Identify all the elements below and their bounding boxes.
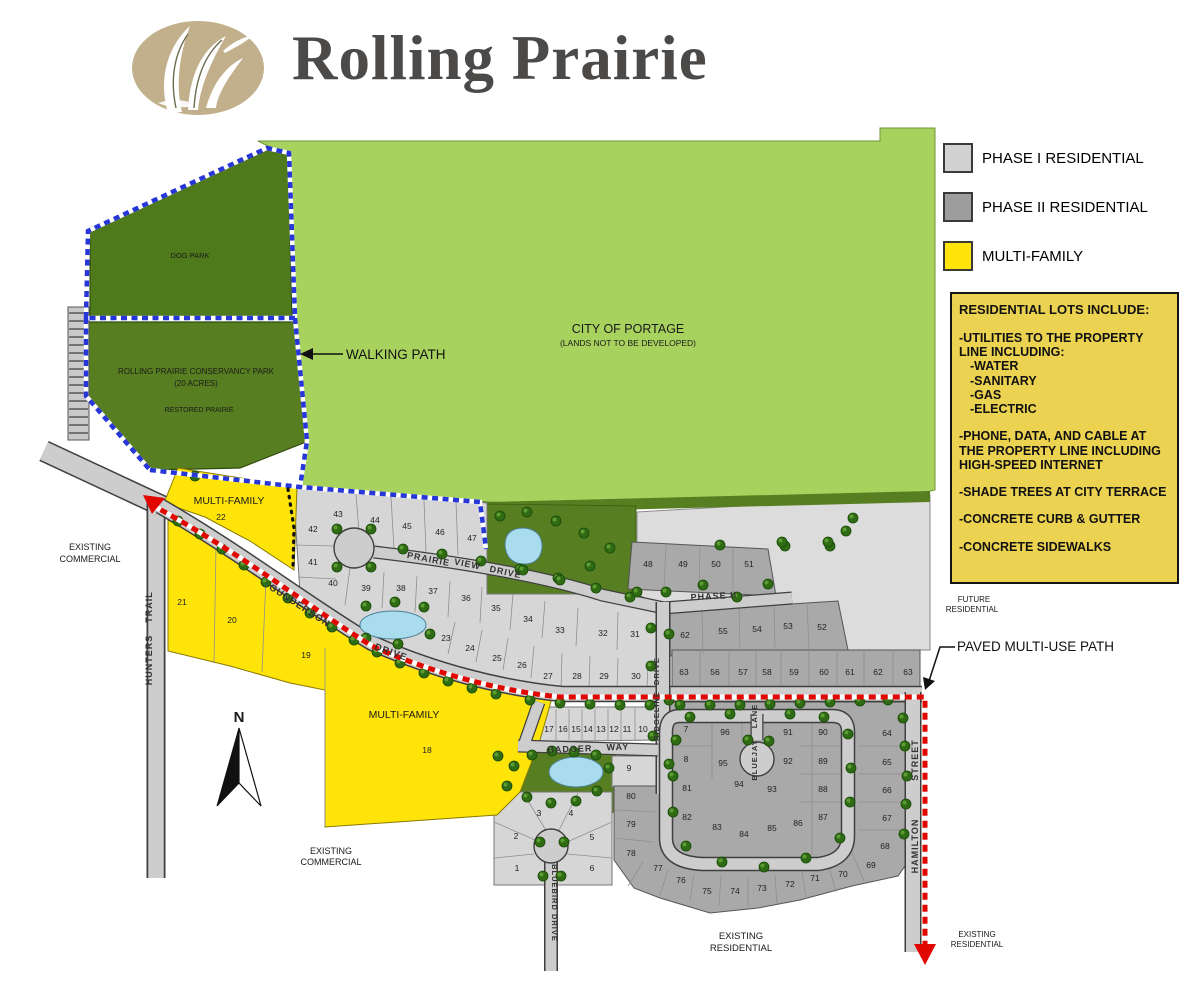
tree-icon-highlight (850, 515, 854, 519)
legend-swatch (943, 192, 973, 222)
lot-number: 59 (789, 667, 799, 677)
lot-number: 43 (333, 509, 343, 519)
tree-icon-highlight (527, 697, 531, 701)
lot-number: 14 (583, 724, 593, 734)
paved-path-leader (929, 647, 955, 681)
lot-number: 91 (783, 727, 793, 737)
lot-number: 36 (461, 593, 471, 603)
lot-number: 31 (630, 629, 640, 639)
street-label: LANE (750, 704, 759, 728)
tree-icon-highlight (717, 542, 721, 546)
tree-icon-highlight (557, 700, 561, 704)
tree-icon-highlight (561, 839, 565, 843)
tree-icon (538, 871, 548, 881)
prairie-view-cul-de-sac (334, 528, 374, 568)
tree-icon (390, 597, 400, 607)
lot-number: 23 (441, 633, 451, 643)
tree-icon (841, 526, 851, 536)
tree-icon-highlight (670, 809, 674, 813)
info-box-line: -SANITARY (959, 374, 1171, 388)
site-plan-page: 1234567891011121314151617181920212223242… (0, 0, 1200, 1001)
area-label: EXISTING (310, 846, 352, 856)
lot-number: 75 (702, 886, 712, 896)
lot-number: 22 (216, 512, 226, 522)
tree-icon-highlight (573, 798, 577, 802)
north-arrow (217, 728, 261, 806)
tree-icon (819, 712, 829, 722)
lot-number: 82 (682, 812, 692, 822)
tree-icon-highlight (395, 641, 399, 645)
tree-icon (715, 540, 725, 550)
lot-number: 58 (762, 667, 772, 677)
lot-number: 3 (537, 808, 542, 818)
tree-icon (785, 709, 795, 719)
area-label: (LANDS NOT TO BE DEVELOPED) (560, 338, 696, 348)
area-label: CITY OF PORTAGE (572, 322, 685, 336)
tree-icon-highlight (529, 752, 533, 756)
tree-icon-highlight (648, 663, 652, 667)
area-label: (20 ACRES) (174, 379, 218, 388)
lot-number: 37 (428, 586, 438, 596)
lot-number: 65 (882, 757, 892, 767)
tree-icon (615, 700, 625, 710)
tree-icon-highlight (593, 752, 597, 756)
tree-icon (361, 601, 371, 611)
tree-icon-highlight (767, 701, 771, 705)
area-label: RESIDENTIAL (951, 940, 1004, 949)
tree-icon (467, 683, 477, 693)
info-box-line: -PHONE, DATA, AND CABLE AT THE PROPERTY … (959, 429, 1171, 472)
tree-icon (901, 799, 911, 809)
tree-icon-highlight (557, 577, 561, 581)
tree-icon (763, 579, 773, 589)
tree-icon-highlight (797, 700, 801, 704)
lot-number: 1 (515, 863, 520, 873)
street-label: RIDGELINE (652, 691, 661, 741)
lot-number: 48 (643, 559, 653, 569)
tree-icon (668, 807, 678, 817)
tree-icon (725, 709, 735, 719)
tree-icon-highlight (663, 589, 667, 593)
tree-icon (571, 796, 581, 806)
lot-number: 21 (177, 597, 187, 607)
street-label: HAMILTON (910, 819, 920, 874)
lot-number: 96 (720, 727, 730, 737)
tree-icon-highlight (904, 773, 908, 777)
tree-icon-highlight (627, 594, 631, 598)
lot-number: 41 (308, 557, 318, 567)
conservancy-park-area (88, 322, 306, 470)
tree-icon-highlight (497, 513, 501, 517)
tree-icon-highlight (902, 743, 906, 747)
tree-icon-highlight (843, 528, 847, 532)
tree-icon (425, 629, 435, 639)
tree-icon (509, 761, 519, 771)
lot-number: 2 (514, 831, 519, 841)
tree-icon-highlight (683, 843, 687, 847)
lot-number: 73 (757, 883, 767, 893)
legend-swatch (943, 143, 973, 173)
callout-label: WALKING PATH (346, 347, 446, 362)
tree-icon-highlight (421, 604, 425, 608)
tree-icon-highlight (581, 530, 585, 534)
lot-number: 62 (873, 667, 883, 677)
lot-number: 67 (882, 813, 892, 823)
lot-number: 38 (396, 583, 406, 593)
pond-prairie-view (505, 528, 542, 564)
lot-number: 19 (301, 650, 311, 660)
tree-icon (848, 513, 858, 523)
lot-number: 30 (631, 671, 641, 681)
brand-title: Rolling Prairie (292, 22, 708, 95)
lot-number: 88 (818, 784, 828, 794)
tree-icon-highlight (766, 738, 770, 742)
tree-icon-highlight (673, 737, 677, 741)
tree-icon-highlight (821, 714, 825, 718)
lot-number: 20 (227, 615, 237, 625)
tree-icon-highlight (825, 539, 829, 543)
tree-icon (668, 771, 678, 781)
tree-icon-highlight (779, 539, 783, 543)
lot-number: 29 (599, 671, 609, 681)
tree-icon-highlight (587, 563, 591, 567)
tree-icon (675, 700, 685, 710)
lot-number: 52 (817, 622, 827, 632)
tree-icon-highlight (617, 702, 621, 706)
tree-icon-highlight (334, 526, 338, 530)
tree-icon (493, 751, 503, 761)
lot-number: 80 (626, 791, 636, 801)
lot-number: 24 (465, 643, 475, 653)
lot-number: 33 (555, 625, 565, 635)
area-label: MULTI-FAMILY (194, 495, 265, 507)
lot-number: 92 (783, 756, 793, 766)
tree-icon (846, 763, 856, 773)
tree-icon (605, 543, 615, 553)
lot-number: 50 (711, 559, 721, 569)
lot-number: 46 (435, 527, 445, 537)
info-box: RESIDENTIAL LOTS INCLUDE: -UTILITIES TO … (950, 292, 1179, 584)
area-label: COMMERCIAL (300, 857, 361, 867)
lot-number: 9 (627, 763, 632, 773)
lot-number: 84 (739, 829, 749, 839)
tree-icon-highlight (392, 599, 396, 603)
tree-icon (495, 511, 505, 521)
lot-number: 77 (653, 863, 663, 873)
lot-number: 25 (492, 653, 502, 663)
tree-icon-highlight (727, 711, 731, 715)
tree-icon (899, 829, 909, 839)
lot-number: 28 (572, 671, 582, 681)
tree-icon-highlight (666, 761, 670, 765)
legend-item: PHASE I RESIDENTIAL (943, 143, 1148, 173)
lot-number: 86 (793, 818, 803, 828)
lot-number: 8 (684, 754, 689, 764)
lot-number: 94 (734, 779, 744, 789)
tree-icon-highlight (445, 678, 449, 682)
tree-icon-highlight (334, 564, 338, 568)
lot-number: 16 (558, 724, 568, 734)
lot-number: 11 (623, 724, 632, 734)
lot-number: 15 (571, 724, 581, 734)
lot-number: 18 (422, 745, 432, 755)
info-box-line: -ELECTRIC (959, 402, 1171, 416)
tree-icon (705, 700, 715, 710)
lot-number: 32 (598, 628, 608, 638)
tree-icon-highlight (540, 873, 544, 877)
tree-icon-highlight (837, 835, 841, 839)
tree-icon-highlight (903, 801, 907, 805)
area-label: N (234, 709, 245, 726)
lot-number: 61 (845, 667, 855, 677)
tree-icon (555, 575, 565, 585)
tree-icon-highlight (845, 731, 849, 735)
lot-number: 53 (783, 621, 793, 631)
tree-icon (502, 781, 512, 791)
tree-icon-highlight (495, 753, 499, 757)
tree-icon-highlight (594, 788, 598, 792)
tree-icon (898, 713, 908, 723)
lot-number: 74 (730, 886, 740, 896)
area-label: EXISTING (69, 542, 111, 552)
info-box-lines: -UTILITIES TO THE PROPERTY LINE INCLUDIN… (959, 331, 1171, 554)
tree-icon (592, 786, 602, 796)
tree-icon (843, 729, 853, 739)
tree-icon-highlight (363, 603, 367, 607)
lot-number: 26 (517, 660, 527, 670)
legend-label: PHASE II RESIDENTIAL (982, 199, 1148, 216)
tree-icon (835, 833, 845, 843)
tree-icon (735, 700, 745, 710)
street-label: HUNTERS (144, 635, 154, 686)
lot-number: 60 (819, 667, 829, 677)
tree-icon-highlight (787, 711, 791, 715)
tree-icon (398, 544, 408, 554)
tree-icon-highlight (587, 701, 591, 705)
brand-logo (128, 18, 268, 118)
tree-icon-highlight (469, 685, 473, 689)
tree-icon (681, 841, 691, 851)
lot-number: 7 (684, 724, 689, 734)
tree-icon (366, 524, 376, 534)
tree-icon-highlight (368, 526, 372, 530)
lot-number: 66 (882, 785, 892, 795)
tree-icon (591, 583, 601, 593)
lot-number: 47 (467, 533, 477, 543)
lot-number: 6 (590, 863, 595, 873)
tree-icon-highlight (670, 773, 674, 777)
area-label: ROLLING PRAIRIE CONSERVANCY PARK (118, 367, 275, 376)
tree-icon (671, 735, 681, 745)
street-label: BLUEBIRD DRIVE (550, 864, 559, 942)
tree-icon-highlight (647, 702, 651, 706)
tree-icon (527, 750, 537, 760)
lot-number: 87 (818, 812, 828, 822)
legend-item: PHASE II RESIDENTIAL (943, 192, 1148, 222)
tree-icon-highlight (634, 589, 638, 593)
tree-icon (664, 759, 674, 769)
lot-number: 64 (882, 728, 892, 738)
dog-park-area (90, 150, 292, 318)
lot-number: 72 (785, 879, 795, 889)
area-label: EXISTING (958, 930, 995, 939)
legend-item: MULTI-FAMILY (943, 241, 1148, 271)
lot-number: 90 (818, 727, 828, 737)
info-box-title: RESIDENTIAL LOTS INCLUDE: (959, 303, 1171, 318)
lot-number: 78 (626, 848, 636, 858)
tree-icon (522, 507, 532, 517)
lot-number: 70 (838, 869, 848, 879)
tree-icon (777, 537, 787, 547)
tree-icon-highlight (803, 855, 807, 859)
legend-label: MULTI-FAMILY (982, 248, 1083, 265)
info-box-line: -SHADE TREES AT CITY TERRACE (959, 485, 1171, 499)
lot-number: 4 (569, 808, 574, 818)
tree-icon-highlight (900, 715, 904, 719)
tree-icon-highlight (707, 702, 711, 706)
lot-number: 93 (767, 784, 777, 794)
tree-icon-highlight (700, 582, 704, 586)
street-label: TRAIL (144, 591, 154, 623)
tree-icon (559, 837, 569, 847)
tree-icon-highlight (537, 839, 541, 843)
tree-icon (604, 763, 614, 773)
lot-number: 49 (678, 559, 688, 569)
header: Rolling Prairie (0, 0, 1200, 125)
legend-label: PHASE I RESIDENTIAL (982, 150, 1144, 167)
street-label: BLUEJAY (750, 739, 759, 780)
street-label: DRIVE (652, 657, 661, 685)
tree-icon (585, 561, 595, 571)
tree-icon (525, 695, 535, 705)
tree-icon (765, 699, 775, 709)
tree-icon (698, 580, 708, 590)
lot-number: 27 (543, 671, 553, 681)
lot-number: 13 (596, 724, 606, 734)
info-box-line: -WATER (959, 359, 1171, 373)
lot-number: 54 (752, 624, 762, 634)
pond-badger (549, 757, 603, 787)
lot-number: 69 (866, 860, 876, 870)
lot-number: 71 (810, 873, 820, 883)
area-label: FUTURE (958, 595, 990, 604)
lot-number: 68 (880, 841, 890, 851)
lot-number: 76 (676, 875, 686, 885)
tree-icon (491, 689, 501, 699)
city-of-portage-area (258, 128, 935, 507)
tree-icon (551, 516, 561, 526)
tree-icon-highlight (901, 831, 905, 835)
lot-number: 40 (328, 578, 338, 588)
tree-icon-highlight (524, 509, 528, 513)
tree-icon-highlight (848, 765, 852, 769)
tree-icon (366, 562, 376, 572)
tree-icon (759, 862, 769, 872)
area-label: COMMERCIAL (59, 554, 120, 564)
tree-icon (522, 792, 532, 802)
lot-number: 17 (544, 724, 554, 734)
tree-icon-highlight (737, 702, 741, 706)
area-label: EXISTING (719, 931, 763, 942)
tree-icon (546, 798, 556, 808)
tree-icon-highlight (666, 631, 670, 635)
tree-icon (661, 587, 671, 597)
tree-icon-highlight (553, 518, 557, 522)
lot-number: 42 (308, 524, 318, 534)
lot-number: 63 (679, 667, 689, 677)
lot-number: 55 (718, 626, 728, 636)
lot-number: 10 (638, 724, 648, 734)
tree-icon (632, 587, 642, 597)
lot-number: 44 (370, 515, 380, 525)
tree-icon-highlight (493, 691, 497, 695)
info-box-line: -CONCRETE CURB & GUTTER (959, 512, 1171, 526)
lot-number: 85 (767, 823, 777, 833)
area-label: MULTI-FAMILY (369, 709, 440, 721)
area-label: RESTORED PRAIRIE (165, 407, 234, 414)
tree-icon-highlight (847, 799, 851, 803)
path-arrow-end (914, 944, 936, 965)
legend: PHASE I RESIDENTIALPHASE II RESIDENTIALM… (943, 143, 1148, 290)
tree-icon (535, 837, 545, 847)
street-label: BADGER (547, 743, 592, 755)
lot-number: 56 (710, 667, 720, 677)
street-label: STREET (910, 739, 920, 781)
tree-icon (685, 712, 695, 722)
tree-icon-highlight (504, 783, 508, 787)
tree-icon (419, 602, 429, 612)
info-box-line: -GAS (959, 388, 1171, 402)
tree-icon-highlight (606, 765, 610, 769)
tree-icon-highlight (607, 545, 611, 549)
tree-icon (332, 562, 342, 572)
tree-icon-highlight (368, 564, 372, 568)
tree-icon-highlight (511, 763, 515, 767)
lot-number: 51 (744, 559, 754, 569)
tree-icon (823, 537, 833, 547)
tree-icon-highlight (427, 631, 431, 635)
tree-icon (717, 857, 727, 867)
area-label: DOG PARK (170, 251, 209, 260)
tree-icon-highlight (421, 670, 425, 674)
area-label: RESIDENTIAL (710, 943, 772, 954)
tree-icon (764, 736, 774, 746)
lot-number: 12 (609, 724, 619, 734)
tree-icon-highlight (263, 579, 267, 583)
tree-icon-highlight (677, 702, 681, 706)
info-box-line: -UTILITIES TO THE PROPERTY LINE INCLUDIN… (959, 331, 1171, 360)
lot-number: 39 (361, 583, 371, 593)
tree-icon (664, 629, 674, 639)
tree-icon-highlight (548, 800, 552, 804)
tree-icon (801, 853, 811, 863)
street-label: WAY (606, 742, 629, 753)
tree-icon (900, 741, 910, 751)
tree-icon-highlight (439, 551, 443, 555)
lot-number: 79 (626, 819, 636, 829)
tree-icon-highlight (761, 864, 765, 868)
lot-number: 45 (402, 521, 412, 531)
phase1-lot9 (612, 756, 657, 787)
lot-number: 89 (818, 756, 828, 766)
tree-icon-highlight (687, 714, 691, 718)
tree-icon (646, 623, 656, 633)
legend-swatch (943, 241, 973, 271)
lot-number: 35 (491, 603, 501, 613)
lot-number: 81 (682, 783, 692, 793)
tree-icon-highlight (745, 737, 749, 741)
lot-number: 34 (523, 614, 533, 624)
